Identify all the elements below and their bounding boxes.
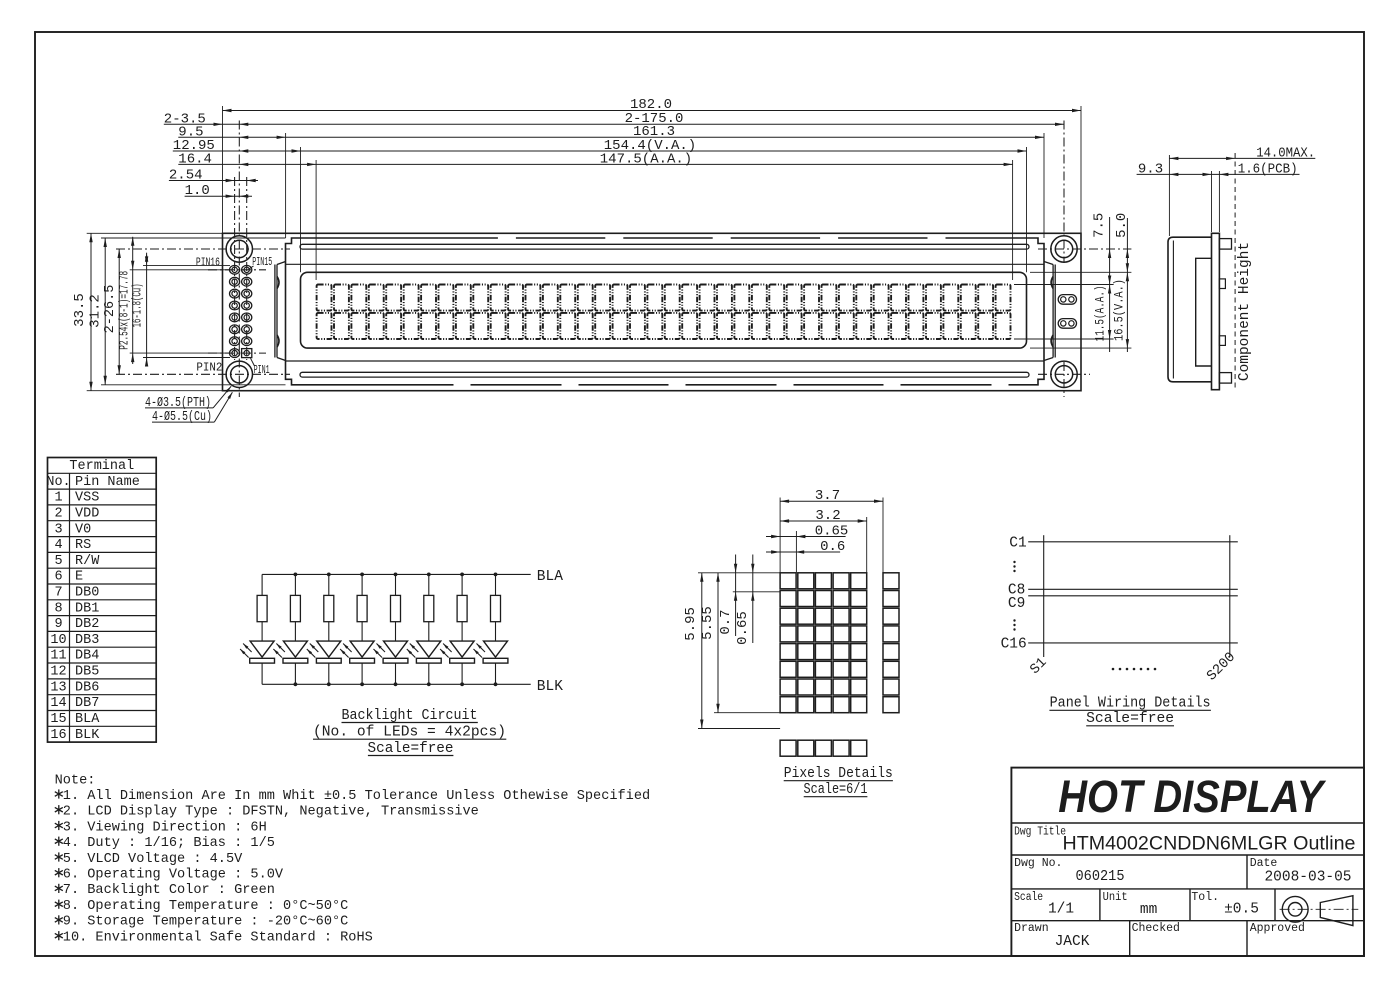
svg-text:C9: C9 (1008, 596, 1025, 612)
svg-text:16-1.8(Cu): 16-1.8(Cu) (130, 283, 145, 327)
svg-text:0.65: 0.65 (815, 524, 849, 540)
svg-text:DB0: DB0 (75, 586, 99, 601)
svg-text:±0.5: ±0.5 (1224, 902, 1259, 918)
svg-text:No.: No. (46, 475, 70, 490)
svg-text:VDD: VDD (75, 506, 99, 521)
svg-text:V0: V0 (75, 522, 91, 537)
svg-text:13: 13 (50, 680, 66, 695)
svg-text:DB2: DB2 (75, 617, 99, 632)
svg-text:PIN16: PIN16 (196, 256, 220, 270)
svg-text:060215: 060215 (1076, 869, 1125, 885)
svg-text:Date: Date (1250, 857, 1278, 870)
svg-text:16: 16 (50, 728, 66, 743)
svg-text:DB5: DB5 (75, 665, 99, 680)
svg-text:2.54: 2.54 (169, 168, 203, 184)
svg-text:6: 6 (54, 570, 62, 585)
svg-text:9. Storage Temperature : -20°C: 9. Storage Temperature : -20°C~60°C (63, 915, 349, 930)
svg-text:BLK: BLK (75, 728, 100, 743)
svg-text:7. Backlight Color : Green: 7. Backlight Color : Green (63, 883, 275, 898)
svg-text:3. Viewing Direction : 6H: 3. Viewing Direction : 6H (63, 820, 267, 835)
svg-text:147.5(A.A.): 147.5(A.A.) (600, 151, 692, 167)
svg-text:16.4: 16.4 (178, 151, 212, 167)
svg-text:DB4: DB4 (75, 649, 99, 664)
svg-text:Pin Name: Pin Name (75, 475, 140, 490)
svg-text:1/1: 1/1 (1048, 902, 1074, 918)
svg-text:PIN2: PIN2 (196, 361, 222, 375)
svg-text:Scale: Scale (1014, 891, 1043, 904)
svg-text:1. All Dimension Are In mm Whi: 1. All Dimension Are In mm Whit ±0.5 Tol… (63, 789, 650, 804)
svg-text:Approved: Approved (1250, 922, 1305, 935)
svg-text:14: 14 (50, 696, 66, 711)
svg-text:10. Environmental Safe Standar: 10. Environmental Safe Standard : RoHS (63, 931, 373, 946)
svg-text:4: 4 (54, 538, 62, 553)
svg-text:Pixels Details: Pixels Details (784, 765, 893, 782)
svg-text:Checked: Checked (1132, 922, 1180, 935)
svg-text:DB3: DB3 (75, 633, 99, 648)
svg-text:15: 15 (50, 712, 66, 727)
svg-text:7.5: 7.5 (1092, 213, 1108, 238)
svg-text:9.3: 9.3 (1138, 161, 1163, 177)
svg-text:mm: mm (1140, 902, 1157, 918)
svg-text:9: 9 (54, 617, 62, 632)
svg-text:2008-03-05: 2008-03-05 (1264, 870, 1351, 886)
svg-text:3.2: 3.2 (815, 508, 840, 524)
svg-text:HOT DISPLAY: HOT DISPLAY (1058, 771, 1327, 822)
svg-text:4-Ø3.5(PTH): 4-Ø3.5(PTH) (145, 396, 211, 411)
svg-text:HTM4002CNDDN6MLGR Outline: HTM4002CNDDN6MLGR Outline (1063, 833, 1356, 855)
svg-text:VSS: VSS (75, 491, 99, 506)
svg-text:14.0MAX.: 14.0MAX. (1256, 145, 1315, 161)
svg-text:C1: C1 (1009, 535, 1026, 551)
svg-text:5.0: 5.0 (1114, 213, 1130, 238)
svg-text:C16: C16 (1001, 636, 1027, 652)
svg-text:2. LCD Display Type : DFSTN, N: 2. LCD Display Type : DFSTN, Negative, T… (63, 805, 479, 820)
svg-text:12: 12 (50, 665, 66, 680)
svg-text:3.7: 3.7 (815, 488, 840, 504)
svg-text:Dwg No.: Dwg No. (1014, 857, 1062, 870)
svg-text:16.5(V.A.): 16.5(V.A.) (1113, 279, 1127, 341)
svg-text:8: 8 (54, 601, 62, 616)
svg-text:JACK: JACK (1055, 934, 1090, 950)
svg-text:(No. of LEDs = 4x2pcs): (No. of LEDs = 4x2pcs) (313, 723, 506, 740)
svg-text:Panel Wiring Details: Panel Wiring Details (1050, 695, 1211, 712)
svg-text:Dwg Title: Dwg Title (1014, 826, 1066, 839)
svg-text:5: 5 (54, 554, 62, 569)
svg-text:7: 7 (54, 586, 62, 601)
svg-text:10: 10 (50, 633, 66, 648)
svg-text:Scale=free: Scale=free (1086, 710, 1174, 727)
svg-text:11.5(A.A.): 11.5(A.A.) (1094, 285, 1108, 341)
svg-text:4-Ø5.5(Cu): 4-Ø5.5(Cu) (152, 410, 212, 425)
svg-text:DB7: DB7 (75, 696, 99, 711)
svg-text:1.0: 1.0 (185, 183, 210, 199)
svg-text:DB6: DB6 (75, 680, 99, 695)
svg-text:BLA: BLA (75, 712, 100, 727)
svg-text:1: 1 (54, 491, 62, 506)
svg-text:2: 2 (54, 506, 62, 521)
svg-text:Backlight Circuit: Backlight Circuit (342, 707, 478, 724)
svg-text:33.5: 33.5 (72, 293, 88, 327)
svg-text:11: 11 (50, 649, 66, 664)
svg-text:5.55: 5.55 (700, 606, 716, 640)
svg-text:RS: RS (75, 538, 91, 553)
svg-text:Terminal: Terminal (69, 459, 134, 474)
svg-text:E: E (75, 570, 83, 585)
svg-text:Component Height: Component Height (1237, 242, 1253, 381)
svg-text:5.95: 5.95 (683, 607, 699, 641)
svg-text:DB1: DB1 (75, 601, 99, 616)
svg-text:Scale=free: Scale=free (368, 740, 454, 757)
svg-text:8. Operating Temperature : 0°C: 8. Operating Temperature : 0°C~50°C (63, 899, 349, 914)
svg-text:Tol.: Tol. (1191, 891, 1219, 904)
svg-text:0.6: 0.6 (820, 539, 845, 555)
svg-text:1.6(PCB): 1.6(PCB) (1238, 161, 1298, 177)
svg-text:31.2: 31.2 (88, 294, 104, 328)
svg-text:0.65: 0.65 (735, 611, 751, 645)
svg-text:PIN1: PIN1 (254, 363, 270, 377)
svg-text:0.7: 0.7 (718, 609, 734, 634)
svg-text:6. Operating Voltage : 5.0V: 6. Operating Voltage : 5.0V (63, 868, 284, 883)
svg-text:Scale=6/1: Scale=6/1 (804, 781, 868, 798)
svg-text:4. Duty : 1/16; Bias : 1/5: 4. Duty : 1/16; Bias : 1/5 (63, 836, 275, 851)
svg-text:5. VLCD Voltage : 4.5V: 5. VLCD Voltage : 4.5V (63, 852, 243, 867)
svg-text:PIN15: PIN15 (252, 255, 272, 269)
svg-text:BLK: BLK (537, 679, 563, 695)
svg-text:Note:: Note: (55, 774, 96, 789)
svg-text:BLA: BLA (537, 569, 563, 585)
svg-text:Unit: Unit (1103, 891, 1128, 904)
svg-text:3: 3 (54, 522, 62, 537)
svg-text:R/W: R/W (75, 554, 100, 569)
svg-text:Drawn: Drawn (1014, 922, 1049, 935)
